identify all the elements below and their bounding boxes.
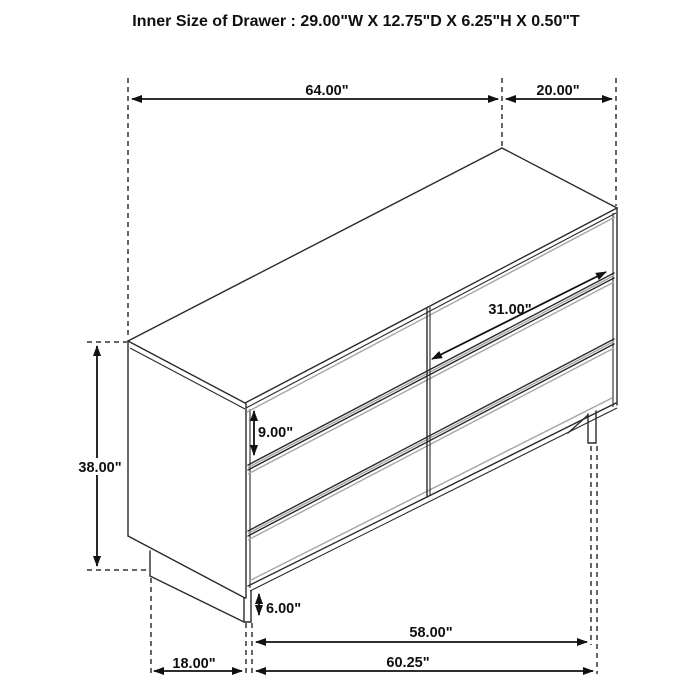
dimension-label-top-width: 64.00" [305, 83, 348, 99]
dimension-label-drawer-height: 9.00" [258, 425, 293, 441]
dimension-label-drawer-inner-width: 31.00" [488, 302, 531, 318]
dimension-label-base-depth: 18.00" [172, 656, 215, 672]
dresser-dimension-diagram: Inner Size of Drawer : 29.00"W X 12.75"D… [0, 0, 700, 700]
labels: Inner Size of Drawer : 29.00"W X 12.75"D… [77, 13, 580, 672]
dimension-label-top-depth: 20.00" [536, 83, 579, 99]
dresser-outline [128, 148, 617, 622]
base-plinth [150, 551, 251, 622]
dimension-label-base-height: 6.00" [266, 601, 301, 617]
top-face [128, 148, 617, 409]
drawer-center-divider [427, 307, 430, 497]
dimension-label-leg-span: 58.00" [409, 625, 452, 641]
front-face [248, 208, 617, 591]
dimension-label-overall-height: 38.00" [78, 460, 121, 476]
diagram-canvas: Inner Size of Drawer : 29.00"W X 12.75"D… [0, 0, 700, 700]
dimension-label-overall-width: 60.25" [386, 655, 429, 671]
diagram-title: Inner Size of Drawer : 29.00"W X 12.75"D… [132, 13, 580, 30]
